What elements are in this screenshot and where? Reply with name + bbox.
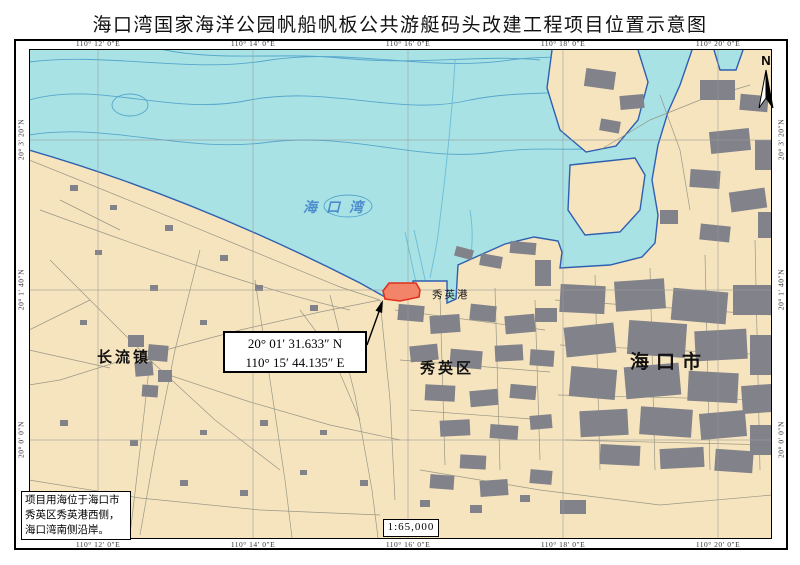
grid-label-left: 20° 0′ 0″N — [17, 405, 26, 475]
sea-name-label: 海口湾 — [303, 197, 372, 217]
port-name-label: 秀英港 — [432, 287, 470, 302]
grid-label-bottom: 110° 12′ 0″E — [58, 540, 138, 549]
town-name-label: 长流镇 — [97, 346, 151, 367]
grid-label-left: 20° 3′ 20″N — [17, 105, 26, 175]
grid-label-left: 20° 1′ 40″N — [17, 255, 26, 325]
grid-label-right: 20° 1′ 40″N — [777, 255, 786, 325]
note-line: 项目用海位于海口市 — [25, 493, 127, 508]
grid-label-top: 110° 16′ 0″E — [368, 39, 448, 48]
note-line: 秀英区秀英港西侧， — [25, 508, 127, 523]
project-note-box: 项目用海位于海口市 秀英区秀英港西侧， 海口湾南侧沿岸。 — [21, 491, 131, 540]
grid-label-bottom: 110° 16′ 0″E — [368, 540, 448, 549]
grid-label-top: 110° 14′ 0″E — [213, 39, 293, 48]
north-label: N — [748, 53, 784, 68]
scale-value: 1:65,000 — [388, 521, 435, 533]
city-name-label: 海口市 — [630, 347, 708, 374]
callout-latitude: 20° 01′ 31.633″ N — [225, 334, 365, 353]
grid-label-bottom: 110° 20′ 0″E — [678, 540, 758, 549]
grid-label-right: 20° 3′ 20″N — [777, 105, 786, 175]
map-title: 海口湾国家海洋公园帆船帆板公共游艇码头改建工程项目位置示意图 — [0, 10, 800, 37]
grid-label-bottom: 110° 14′ 0″E — [213, 540, 293, 549]
district-name-label: 秀英区 — [420, 357, 474, 378]
grid-label-top: 110° 20′ 0″E — [678, 39, 758, 48]
location-map-figure: 海口湾国家海洋公园帆船帆板公共游艇码头改建工程项目位置示意图 110° 12′ … — [0, 0, 800, 565]
callout-longitude: 110° 15′ 44.135″ E — [225, 353, 365, 372]
north-arrow: N — [748, 53, 784, 115]
note-line: 海口湾南侧沿岸。 — [25, 523, 127, 538]
grid-label-right: 20° 0′ 0″N — [777, 405, 786, 475]
grid-label-top: 110° 12′ 0″E — [58, 39, 138, 48]
grid-label-top: 110° 18′ 0″E — [523, 39, 603, 48]
north-needle-icon — [748, 68, 784, 114]
map-inner-frame — [29, 49, 772, 539]
grid-label-bottom: 110° 18′ 0″E — [523, 540, 603, 549]
project-coordinates-callout: 20° 01′ 31.633″ N 110° 15′ 44.135″ E — [223, 331, 367, 373]
scale-box: 1:65,000 — [383, 519, 439, 537]
